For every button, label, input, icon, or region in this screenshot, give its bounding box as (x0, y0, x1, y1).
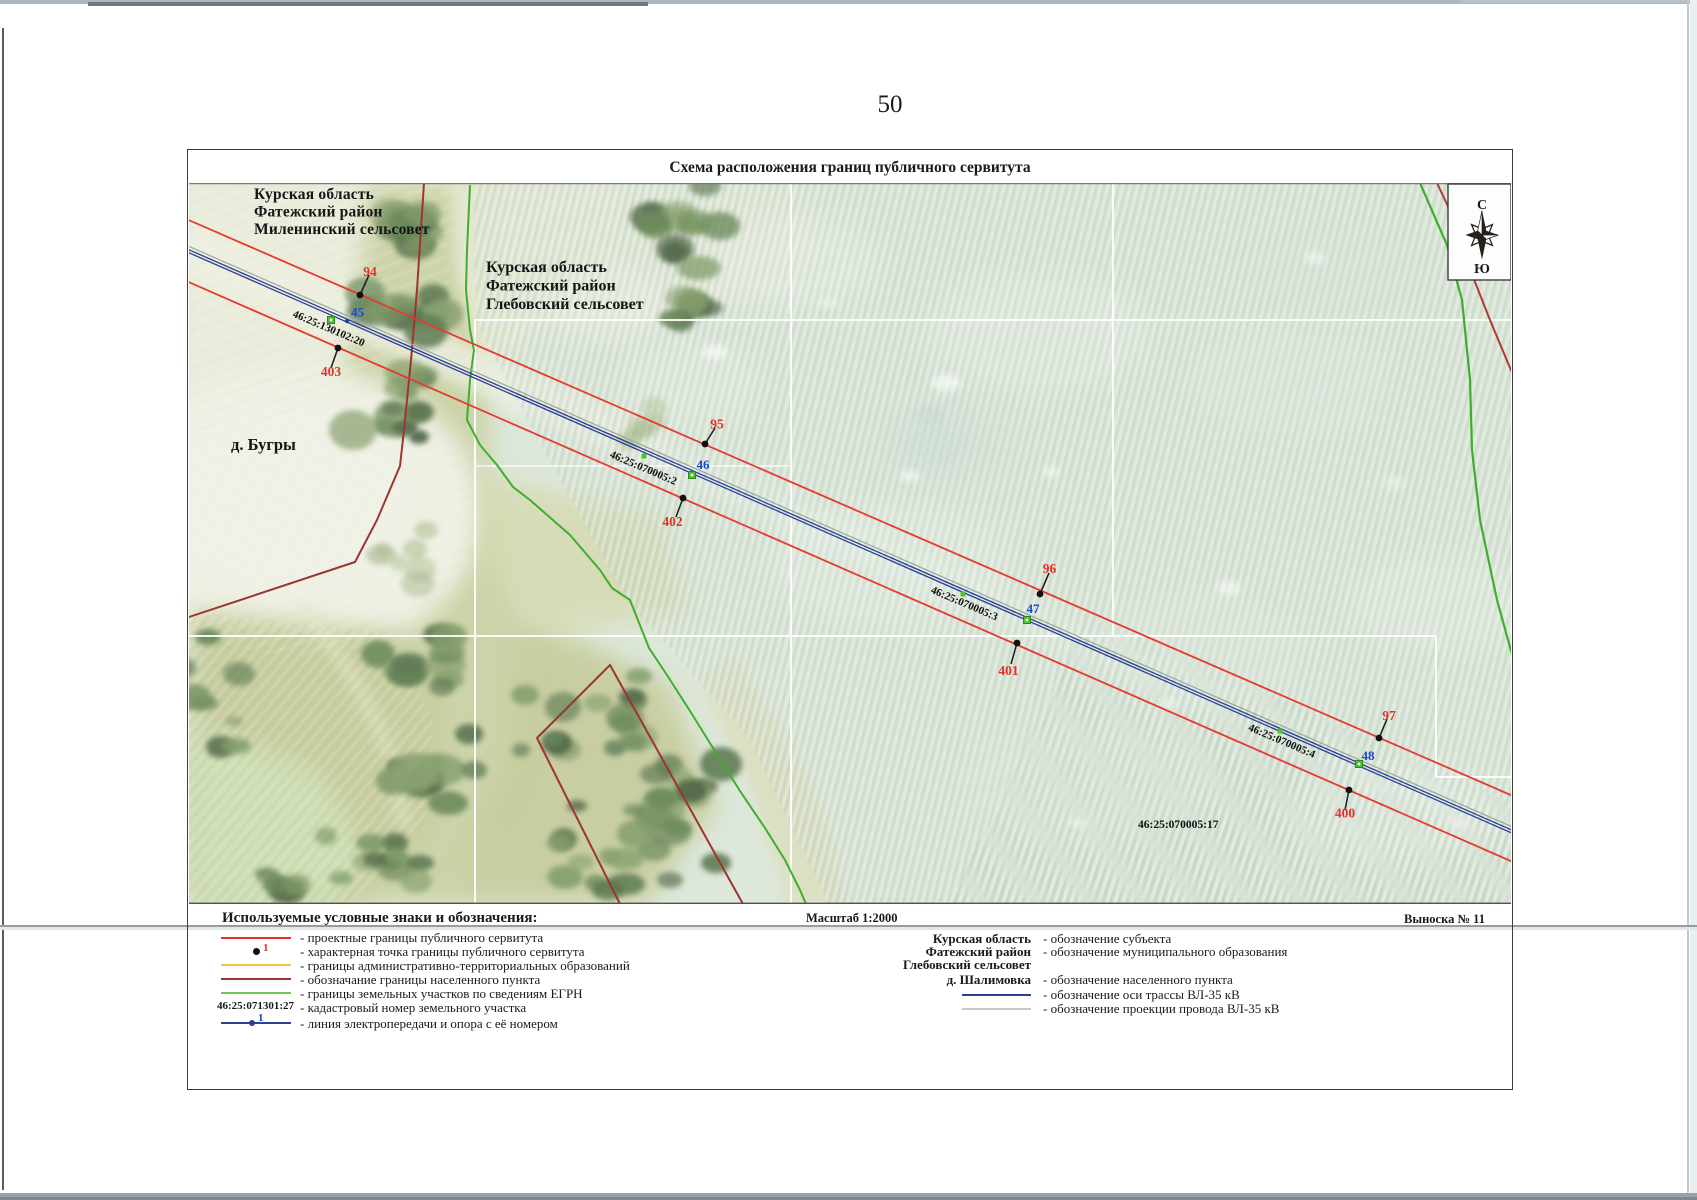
svg-text:С: С (1477, 198, 1487, 213)
svg-text:46: 46 (697, 457, 711, 472)
svg-text:94: 94 (363, 264, 377, 279)
svg-text:46:25:070005:17: 46:25:070005:17 (1138, 819, 1219, 831)
svg-text:45: 45 (351, 305, 365, 320)
svg-text:400: 400 (1335, 806, 1356, 821)
svg-text:Ю: Ю (1474, 262, 1490, 277)
svg-text:402: 402 (662, 514, 683, 529)
svg-text:96: 96 (1043, 561, 1057, 576)
svg-text:403: 403 (321, 364, 342, 379)
svg-text:97: 97 (1382, 708, 1396, 723)
svg-text:95: 95 (710, 417, 724, 432)
svg-text:47: 47 (1027, 601, 1041, 616)
svg-text:48: 48 (1362, 748, 1376, 763)
svg-text:401: 401 (998, 663, 1019, 678)
svg-text:д. Бугры: д. Бугры (231, 435, 296, 454)
